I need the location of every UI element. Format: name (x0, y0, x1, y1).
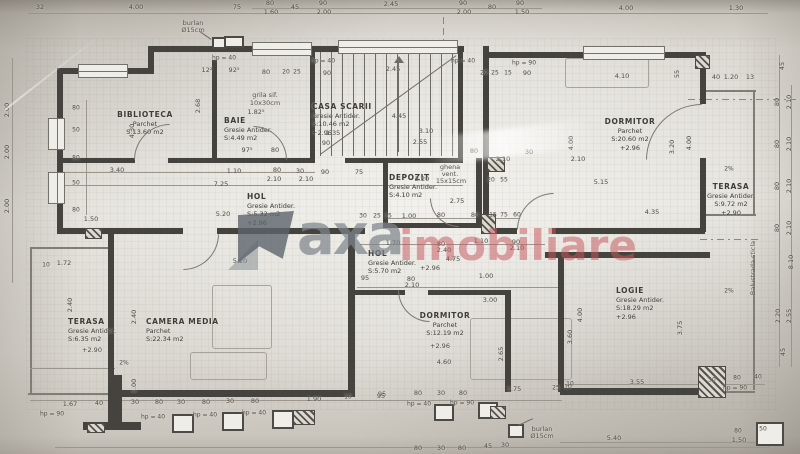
room-label-dormitor: DORMITORParchetS:12.19 m2 (420, 311, 471, 338)
stair-step (375, 52, 376, 156)
dim-label: 1.60 (264, 8, 278, 16)
room-detail: S:22.34 m2 (146, 335, 219, 343)
dim-label: 40 (95, 399, 103, 407)
hatched-post (85, 228, 102, 239)
dim-label: 2.40 (437, 246, 451, 254)
wall-segment (489, 52, 543, 58)
room-detail: S:20.60 m2 (605, 135, 656, 143)
dim-label: 2.55 (413, 138, 427, 146)
dim-label: 2.00 (3, 145, 11, 159)
dim-label: 32 (36, 3, 44, 11)
dim-label: 5.40 (607, 434, 621, 442)
room-detail: S:6.35 m2 (68, 335, 116, 343)
dim-label: 45 (778, 62, 786, 70)
room-detail: Gresie Antider. (312, 112, 372, 120)
room-label-depozit: DEPOZITGresie Antider.S:4.10 m2 (389, 173, 437, 200)
dim-label: 15 (384, 213, 392, 220)
room-name: DEPOZIT (389, 173, 437, 183)
room-label-camera-media: CAMERA MEDIAParchetS:22.34 m2 (146, 317, 219, 344)
dim-label: 30 (525, 148, 533, 156)
wall-segment (57, 228, 183, 234)
dim-label: 1.30 (729, 4, 743, 12)
room-detail: Gresie Antider. (616, 296, 664, 304)
dim-label: 20 (282, 69, 290, 76)
dimension-line (28, 13, 768, 14)
column-post (434, 404, 454, 421)
dim-label: 80 (773, 224, 781, 232)
dim-label: 4.75 (446, 255, 460, 263)
dim-label: 90 (459, 0, 467, 7)
wall-segment (57, 158, 135, 163)
window (338, 40, 458, 54)
dim-label: 1.35 (326, 129, 340, 137)
dim-label: 2.10 (785, 137, 793, 151)
dim-label: 1.00 (402, 212, 416, 220)
dim-label: 2.10 (510, 244, 524, 252)
dimension-line (55, 447, 770, 448)
dim-label: +2.90 (82, 346, 102, 354)
railing (28, 393, 114, 395)
room-name: BAIE (224, 116, 272, 126)
dim-label: 80 (733, 375, 741, 382)
furniture-outline (565, 58, 649, 88)
dim-label: 25 (373, 213, 381, 220)
dim-label: 13 (746, 73, 754, 81)
dim-label: 2.20 (774, 309, 782, 323)
railing (706, 90, 756, 92)
stair-step (452, 52, 453, 156)
wall-segment (348, 230, 355, 392)
room-detail: Gresie Antider. (368, 259, 416, 267)
room-detail: Gresie Antider. (247, 202, 295, 210)
dim-label: 80 (72, 105, 80, 112)
dim-label: 80 (773, 182, 781, 190)
dim-label: 90 (319, 0, 327, 7)
dim-label: hp = 90 (512, 60, 536, 67)
dim-label: hp = 90 (723, 385, 747, 392)
dim-label: 1.50 (515, 8, 529, 16)
dim-label: hp = 90 (40, 411, 64, 418)
room-label-hol: HOLGresie Antider.S:5.70 m2 (368, 249, 416, 276)
dim-label: 40 (754, 374, 762, 381)
stair-step (441, 52, 442, 156)
dim-label: 20 (487, 177, 495, 184)
dim-label: 2.10 (267, 175, 281, 183)
dim-label: 4.45 (392, 112, 406, 120)
dim-label: 1.67 (63, 400, 77, 408)
dim-label: 30 (359, 213, 367, 220)
wall-segment (560, 388, 708, 395)
dim-label: 80 (72, 155, 80, 162)
room-label-casa-scarii: CASA SCARIIGresie Antider.S:10.46 m2+2.9… (312, 102, 372, 137)
dim-label: 20 (480, 70, 488, 77)
dim-label: hp = 40 (451, 58, 475, 65)
room-label-hol: HOLGresie Antider.S:5.32 m2+2.96 (247, 192, 295, 227)
dim-label: hp = 40 (141, 414, 165, 421)
dim-label: 2% (724, 166, 734, 173)
dim-label: 2.40 (130, 310, 138, 324)
dim-label: 5.15 (594, 178, 608, 186)
dim-label: 3.20 (668, 140, 676, 154)
dim-label: 3.60 (566, 330, 574, 344)
column-post (224, 36, 244, 48)
room-name: DORMITOR (420, 311, 471, 321)
dim-label: 2.10 (785, 179, 793, 193)
room-name: CAMERA MEDIA (146, 317, 219, 327)
dim-label: 95 (377, 392, 385, 400)
room-label-terasa: TERASAGresie Antider.S:9.72 m2+2.90 (707, 182, 755, 217)
dim-label: 80 (773, 98, 781, 106)
dim-label: 75 (355, 168, 363, 176)
dim-label: 90 (321, 168, 329, 176)
room-detail: S:18.29 m2 (616, 304, 664, 312)
room-label-terasa: TERASAGresie Antider.S:6.35 m2 (68, 317, 116, 344)
dim-label: 5.20 (216, 210, 230, 218)
room-detail: S:13.60 m2 (117, 128, 173, 136)
annotation-label: 10x30cm (250, 99, 280, 107)
dim-label: 80 (155, 398, 163, 406)
dim-label: 25 (293, 69, 301, 76)
dim-label: 2.45 (386, 65, 400, 73)
wall-segment (558, 252, 564, 392)
dim-label: 10 (566, 381, 574, 388)
dim-label: hp = 40 (242, 410, 266, 417)
dim-label: 4.00 (129, 3, 143, 11)
dim-label: 80 (202, 398, 210, 406)
railing (30, 247, 32, 395)
furniture-outline (470, 318, 572, 380)
dim-label: 50 (708, 377, 716, 384)
room-name: TERASA (707, 182, 755, 192)
dim-label: +2.96 (430, 342, 450, 350)
dim-label: 3.75 (676, 321, 684, 335)
dim-label: hp = 40 (212, 55, 236, 62)
stair-step (430, 52, 431, 156)
annotation-label: Ø15cm (530, 432, 553, 440)
wall-segment (108, 230, 114, 395)
dim-label: 80 (437, 211, 445, 219)
room-detail: S:5.32 m2 (247, 210, 295, 218)
room-label-biblioteca: BIBLIOTECAParchetS:13.60 m2 (117, 110, 173, 137)
dim-label: hp = 40 (193, 412, 217, 419)
dim-label: 30 (226, 397, 234, 405)
room-name: HOL (247, 192, 295, 202)
annotation-label: Balustrada sticla (749, 241, 757, 295)
dim-label: 90 (323, 69, 331, 77)
dim-label: 1.20 (724, 73, 738, 81)
stair-arrow (398, 60, 399, 152)
dim-label: 50 (72, 127, 80, 134)
dim-label: 45 (484, 442, 492, 450)
dim-label: 2.00 (317, 8, 331, 16)
column-post (222, 412, 244, 431)
room-name: CASA SCARII (312, 102, 372, 112)
dim-label: 80 (488, 3, 496, 11)
dim-label: 2% (119, 360, 129, 367)
room-name: DORMITOR (605, 117, 656, 127)
dim-label: 75 (233, 3, 241, 11)
dim-label: 8.10 (787, 255, 795, 269)
room-name: HOL (368, 249, 416, 259)
dim-label: 80 (262, 68, 270, 76)
dim-label: 90 (516, 0, 524, 7)
room-detail: +2.96 (605, 144, 656, 152)
wall-segment (505, 290, 511, 392)
dim-label: 50 (759, 426, 767, 433)
column-post (272, 410, 294, 429)
dim-label: 4.60 (437, 358, 451, 366)
annotation-label: 15x15cm (436, 177, 466, 185)
dim-label: 1.90 (307, 395, 321, 403)
window (78, 64, 128, 78)
dim-label: 75 (500, 212, 508, 219)
dim-label: 55 (673, 70, 681, 78)
room-detail: Parchet (420, 321, 471, 329)
dim-label: 80 (459, 389, 467, 397)
dim-label: 7.25 (214, 180, 228, 188)
dim-label: 10 (344, 394, 352, 401)
furniture-outline (212, 285, 272, 349)
dim-label: 1.00 (130, 379, 138, 393)
dim-label: 2.45 (384, 0, 398, 8)
dim-label: 2.10 (785, 95, 793, 109)
room-detail: +2.96 (616, 313, 664, 321)
dim-label: 30 (296, 167, 304, 175)
dim-label: 1.00 (479, 272, 493, 280)
dim-label: 10 (42, 262, 50, 269)
dim-label: 80 (734, 428, 742, 435)
dim-label: 1.50 (732, 436, 746, 444)
dim-label: 80 (72, 207, 80, 214)
room-label-baie: BAIEGresie Antider.S:4.49 m2 (224, 116, 272, 143)
dim-label: hp = 90 (450, 400, 474, 407)
dim-label: 45 (291, 3, 299, 11)
dim-label: 2.65 (497, 347, 505, 361)
dim-label: 2.10 (571, 155, 585, 163)
dim-label: 1.10 (227, 167, 241, 175)
dim-label: 1.82⁵ (247, 108, 264, 116)
dim-label: 2.10 (299, 175, 313, 183)
dim-label: 80 (458, 444, 466, 452)
dim-label: 4.00 (567, 136, 575, 150)
room-detail: Gresie Antider. (707, 192, 755, 200)
wall-segment (212, 60, 217, 158)
dim-label: 2.68 (194, 99, 202, 113)
dim-label: 55 (500, 177, 508, 184)
column-post (172, 414, 194, 433)
dim-label: 50 (72, 180, 80, 187)
room-detail: S:4.49 m2 (224, 134, 272, 142)
dim-label: 90 (523, 69, 531, 77)
dim-label: 80 (273, 166, 281, 174)
dim-label: 1.50 (84, 215, 98, 223)
dim-label: 2.55 (785, 309, 793, 323)
dimension-line (12, 58, 13, 283)
dim-label: 25 (491, 70, 499, 77)
dim-label: 3.00 (483, 296, 497, 304)
room-name: BIBLIOTECA (117, 110, 173, 120)
wall-segment (57, 68, 63, 234)
dimension-line (357, 287, 562, 288)
stair-step (408, 52, 409, 156)
dim-label: 1.70 (386, 239, 400, 247)
floorplan-photo: BIBLIOTECAParchetS:13.60 m2BAIEGresie An… (0, 0, 800, 454)
window (48, 118, 65, 150)
dim-label: 1.10 (474, 237, 488, 245)
window (252, 42, 312, 56)
dim-label: 80 (414, 444, 422, 452)
dim-label: 80 (470, 147, 478, 155)
dim-label: 2.10 (405, 281, 419, 289)
dim-label: 5.20 (233, 257, 247, 265)
dim-label: 4.30 (128, 124, 136, 138)
dim-label: 2.10 (785, 221, 793, 235)
dim-label: 30 (177, 398, 185, 406)
window (583, 46, 665, 60)
wall-segment (700, 158, 706, 232)
room-detail: Parchet (605, 127, 656, 135)
dim-label: 2.20 (415, 175, 429, 183)
dim-label: 80 (471, 211, 479, 219)
dim-label: 3.40 (110, 166, 124, 174)
dim-label: 15 (504, 70, 512, 77)
dim-label: 1.75 (507, 385, 521, 393)
room-detail: Gresie Antider. (389, 183, 437, 191)
dim-label: 1.72 (57, 259, 71, 267)
railing (30, 247, 110, 249)
room-detail: Parchet (117, 120, 173, 128)
dim-label: 2% (724, 288, 734, 295)
room-name: LOGIE (616, 286, 664, 296)
dim-label: 15 (489, 212, 497, 219)
room-label-logie: LOGIEGresie Antider.S:18.29 m2+2.96 (616, 286, 664, 321)
dim-label: 40 (712, 73, 720, 81)
annotation-label: grila sif. (252, 91, 278, 99)
dim-label: 12² (202, 66, 213, 74)
dim-label: 2.00 (3, 199, 11, 213)
column-post (508, 424, 524, 438)
dim-label: 4.00 (619, 4, 633, 12)
dim-label: 90 (322, 139, 330, 147)
dim-label: +2.96 (420, 264, 440, 272)
dim-label: 2.10 (496, 155, 510, 163)
dim-label: 30 (437, 389, 445, 397)
hatched-post (87, 423, 105, 433)
dim-label: 30 (131, 398, 139, 406)
room-label-dormitor: DORMITORParchetS:20.60 m2+2.96 (605, 117, 656, 152)
dim-label: 30 (437, 444, 445, 452)
dim-label: 92⁵ (229, 66, 240, 74)
furniture-outline (190, 352, 267, 380)
wall-segment (552, 228, 705, 234)
dim-label: 2.40 (66, 298, 74, 312)
wall-segment (217, 228, 365, 234)
dim-label: 4.00 (685, 136, 693, 150)
dim-label: 4.10 (615, 72, 629, 80)
wall-segment (108, 375, 122, 425)
dimension-line (30, 368, 115, 369)
dim-label: 2.00 (457, 8, 471, 16)
room-detail: S:12.19 m2 (420, 329, 471, 337)
room-detail: Gresie Antider. (68, 327, 116, 335)
window (48, 172, 65, 204)
hatched-post (490, 406, 506, 419)
room-detail: S:4.10 m2 (389, 191, 437, 199)
dim-label: 80 (251, 397, 259, 405)
dashed-axis-line (700, 239, 760, 240)
dim-label: 45 (779, 348, 787, 356)
room-detail: +2.96 (312, 129, 372, 137)
room-detail: +2.90 (707, 209, 755, 217)
wall-segment (545, 252, 710, 258)
dim-label: 95 (361, 274, 369, 282)
room-name: TERASA (68, 317, 116, 327)
dim-label: 3.10 (419, 127, 433, 135)
dim-label: 3.55 (630, 378, 644, 386)
hatched-post (695, 55, 710, 69)
dim-label: 97⁵ (242, 146, 253, 154)
room-detail: Gresie Antider. (224, 126, 272, 134)
dim-label: hp = 40 (407, 401, 431, 408)
dim-label: 30 (501, 441, 509, 449)
annotation-label: Ø15cm (181, 26, 204, 34)
dim-label: 4.35 (645, 208, 659, 216)
wall-segment (428, 290, 510, 295)
dim-label: 2.75 (450, 197, 464, 205)
dim-label: 60 (513, 212, 521, 219)
dim-label: 80 (271, 146, 279, 154)
room-detail: S:10.46 m2 (312, 120, 372, 128)
dim-label: hp = 40 (311, 58, 335, 65)
wall-segment (168, 158, 315, 163)
hatched-post (293, 410, 315, 425)
dim-label: 25 (552, 385, 560, 392)
stair-arrow-head (394, 56, 404, 63)
room-detail: S:9.72 m2 (707, 200, 755, 208)
dim-label: 4.00 (576, 308, 584, 322)
wall-segment (383, 223, 482, 228)
room-detail: +2.96 (247, 219, 295, 227)
dim-label: 80 (773, 140, 781, 148)
dim-label: 80 (266, 0, 274, 7)
room-detail: Parchet (146, 327, 219, 335)
dim-label: 80 (414, 389, 422, 397)
dim-label: 2.00 (3, 103, 11, 117)
